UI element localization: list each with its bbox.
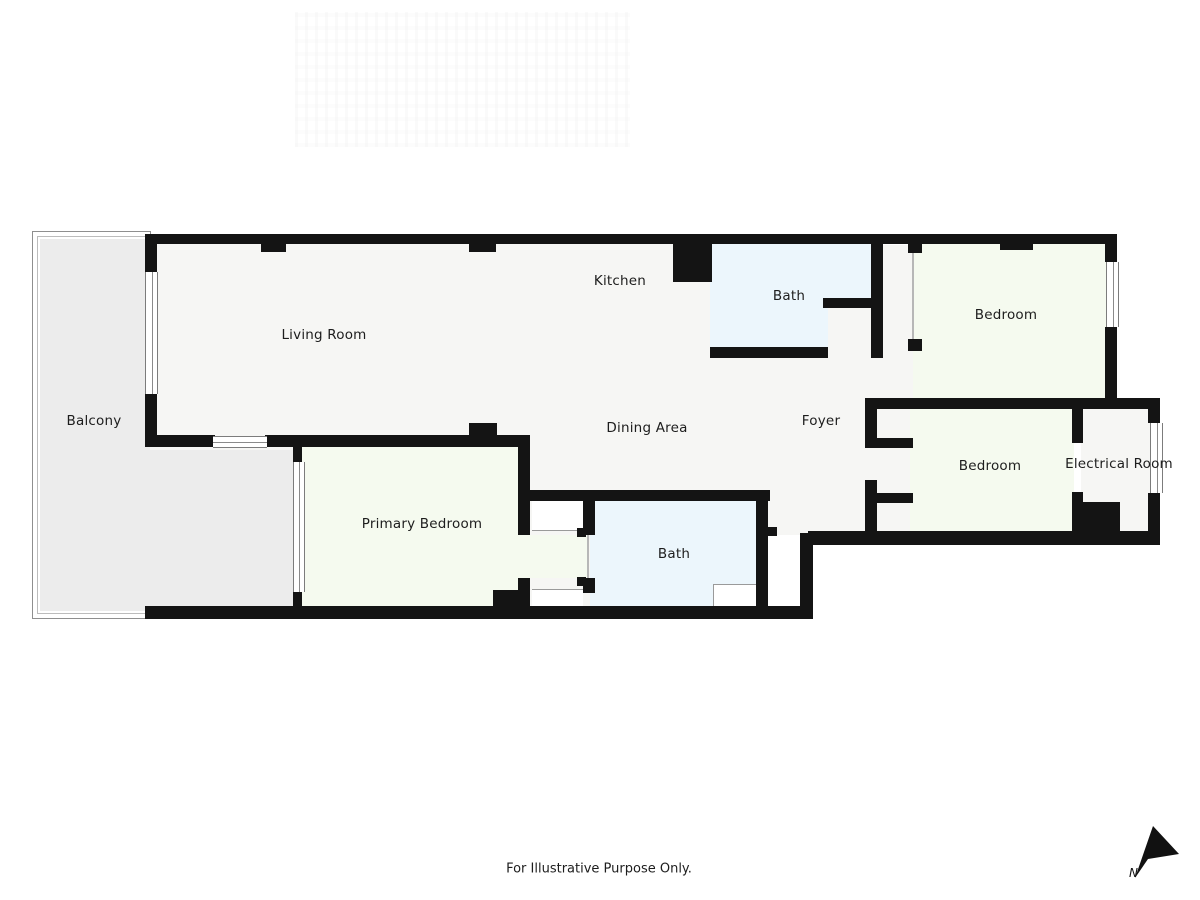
room-label-bath-lower: Bath <box>658 546 690 562</box>
room-label-kitchen: Kitchen <box>594 273 646 289</box>
wall-segment <box>808 531 1160 545</box>
room-label-primary-bedroom: Primary Bedroom <box>362 516 483 532</box>
room-label-living-room: Living Room <box>281 327 366 343</box>
wall-segment <box>1148 493 1160 545</box>
door-jamb <box>877 493 913 503</box>
wall-segment <box>865 480 877 531</box>
room-fill-primary-corridor <box>520 535 588 578</box>
wall-column <box>469 244 496 252</box>
window-living-bottom <box>213 436 267 448</box>
room-fill-bath-upper <box>710 301 828 351</box>
room-label-bedroom-upper: Bedroom <box>975 307 1037 323</box>
wall-segment <box>756 492 768 619</box>
wall-segment <box>1105 327 1117 400</box>
wall-segment <box>145 606 813 619</box>
door-jamb <box>877 438 913 448</box>
room-label-bath-upper: Bath <box>773 288 805 304</box>
door-jamb <box>577 528 586 537</box>
wall-column <box>469 423 497 435</box>
window-bedroom-upper <box>1106 262 1119 327</box>
door-line-bath-lower <box>587 535 589 578</box>
wall-segment <box>518 435 530 535</box>
wall-segment <box>1148 398 1160 423</box>
north-label: N <box>1129 866 1138 880</box>
wall-segment <box>823 298 873 308</box>
closet-niche <box>532 498 583 531</box>
window-living-balcony <box>145 272 158 394</box>
door-jamb <box>577 577 586 586</box>
wall-column <box>1000 244 1033 250</box>
door-jamb <box>908 244 922 253</box>
wall-segment <box>1072 407 1083 443</box>
wall-segment <box>518 490 770 501</box>
wall-segment <box>265 435 530 447</box>
wall-segment <box>145 234 157 274</box>
door-jamb <box>908 339 922 351</box>
wall-column <box>673 234 712 282</box>
wall-column <box>493 590 527 606</box>
window-primary-balcony <box>293 462 305 592</box>
floorplan-canvas: Balcony Living Room Kitchen Bath Bedroom… <box>0 0 1200 900</box>
room-fill-balcony <box>146 445 293 606</box>
wall-segment <box>800 533 813 619</box>
wall-segment <box>871 234 883 358</box>
wall-column <box>1072 502 1120 533</box>
wall-segment <box>710 347 828 358</box>
room-label-dining-area: Dining Area <box>606 420 687 436</box>
door-line-bedroom-upper <box>912 253 914 339</box>
disclaimer-text: For Illustrative Purpose Only. <box>506 862 692 877</box>
door-jamb <box>768 527 777 536</box>
wall-segment <box>145 435 215 447</box>
wall-segment <box>145 234 1117 244</box>
wall-segment <box>293 443 302 463</box>
watermark-pattern <box>295 12 630 147</box>
room-label-bedroom-right: Bedroom <box>959 458 1021 474</box>
wall-segment <box>1105 244 1117 262</box>
room-label-balcony: Balcony <box>67 413 122 429</box>
room-label-electrical: Electrical Room <box>1065 456 1173 472</box>
wall-column <box>261 244 286 252</box>
room-label-foyer: Foyer <box>802 413 840 429</box>
